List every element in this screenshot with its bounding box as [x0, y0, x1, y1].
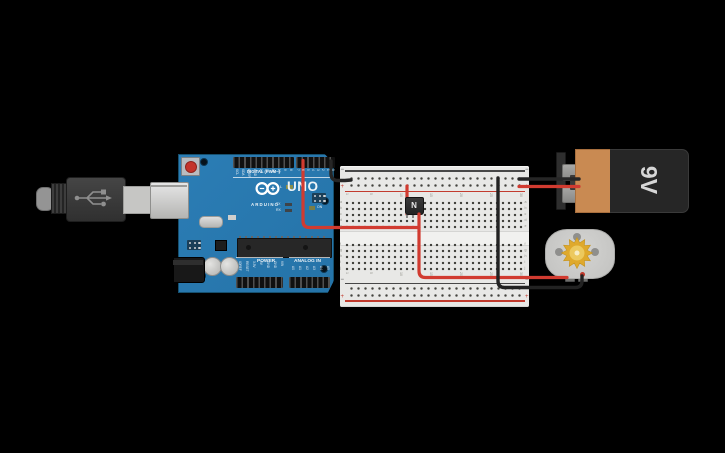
- digital-pin-label: 6: [301, 169, 304, 171]
- row-letter: f: [340, 243, 341, 247]
- digital-pin-label: SCL: [235, 169, 238, 175]
- row-letter: c: [525, 213, 527, 217]
- analog-pin-label: A0: [291, 266, 294, 270]
- row-letter: e: [525, 225, 527, 229]
- digital-pin-label: 2: [321, 169, 324, 171]
- row-letter: d: [340, 219, 342, 223]
- power-pin-label: RESET: [245, 261, 248, 272]
- column-number: 20: [459, 272, 462, 276]
- digital-pin-label: AREF: [247, 169, 250, 178]
- digital-pin-label: 11: [271, 169, 274, 172]
- digital-pin-label: 13: [259, 169, 262, 173]
- row-letter: g: [525, 249, 527, 253]
- row-letter: b: [525, 207, 527, 211]
- digital-pin-label: 3: [316, 169, 319, 171]
- digital-pin-label: 8: [289, 169, 292, 171]
- row-letter: a: [340, 201, 342, 205]
- column-number: 10: [399, 272, 402, 276]
- row-letter: j: [525, 267, 526, 271]
- column-number: 1: [345, 193, 348, 195]
- row-letter: j: [340, 267, 341, 271]
- row-letter: f: [525, 243, 526, 247]
- row-letter: h: [525, 255, 527, 259]
- column-number: 25: [489, 193, 492, 197]
- row-letter: h: [340, 255, 342, 259]
- digital-pin-label: 10: [277, 169, 280, 173]
- power-pin-label: GND: [266, 261, 269, 268]
- row-letter: a: [525, 201, 527, 205]
- digital-pin-label: 1: [326, 169, 329, 171]
- power-pin-label: GND: [273, 261, 276, 268]
- analog-pin-label: A3: [312, 266, 315, 270]
- digital-pin-label: 4: [311, 169, 314, 171]
- analog-pin-label: A5: [326, 266, 329, 270]
- row-letter: i: [340, 261, 341, 265]
- column-number: 5: [369, 193, 372, 195]
- column-number: 1: [345, 272, 348, 274]
- column-number: 10: [399, 193, 402, 197]
- column-number: 15: [429, 193, 432, 197]
- digital-pin-label: 0: [331, 169, 334, 171]
- digital-pin-label: SDA: [241, 169, 244, 176]
- column-number: 15: [429, 272, 432, 276]
- digital-pin-label: 9: [283, 169, 286, 171]
- column-number: 25: [489, 272, 492, 276]
- wire-layer: [0, 0, 725, 453]
- row-letter: i: [525, 261, 526, 265]
- digital-pin-label: GND: [253, 169, 256, 176]
- power-pin-label: 5V: [259, 261, 262, 265]
- analog-pin-label: A1: [298, 266, 301, 270]
- row-letter: d: [525, 219, 527, 223]
- column-number: 5: [369, 272, 372, 274]
- column-number: 20: [459, 193, 462, 197]
- digital-pin-label: 7: [296, 169, 299, 171]
- circuit-canvas: DIGITAL (PWM~) L TX RX ON ARDUINO UNO PO…: [0, 0, 725, 453]
- analog-pin-label: A4: [319, 266, 322, 270]
- column-number: 30: [519, 272, 522, 276]
- row-letter: b: [340, 207, 342, 211]
- column-number: 30: [519, 193, 522, 197]
- digital-pin-label: 5: [306, 169, 309, 171]
- row-letter: g: [340, 249, 342, 253]
- row-letter: c: [340, 213, 342, 217]
- analog-pin-label: A2: [305, 266, 308, 270]
- row-letter: e: [340, 225, 342, 229]
- power-pin-label: 3.3V: [252, 261, 255, 268]
- digital-pin-label: 12: [265, 169, 268, 173]
- power-pin-label: IOREF: [238, 261, 241, 271]
- wire-transistor-to-motor[interactable]: [419, 214, 567, 278]
- power-pin-label: VIN: [280, 261, 283, 266]
- wire-motor-to-negative-rail[interactable]: [498, 178, 582, 288]
